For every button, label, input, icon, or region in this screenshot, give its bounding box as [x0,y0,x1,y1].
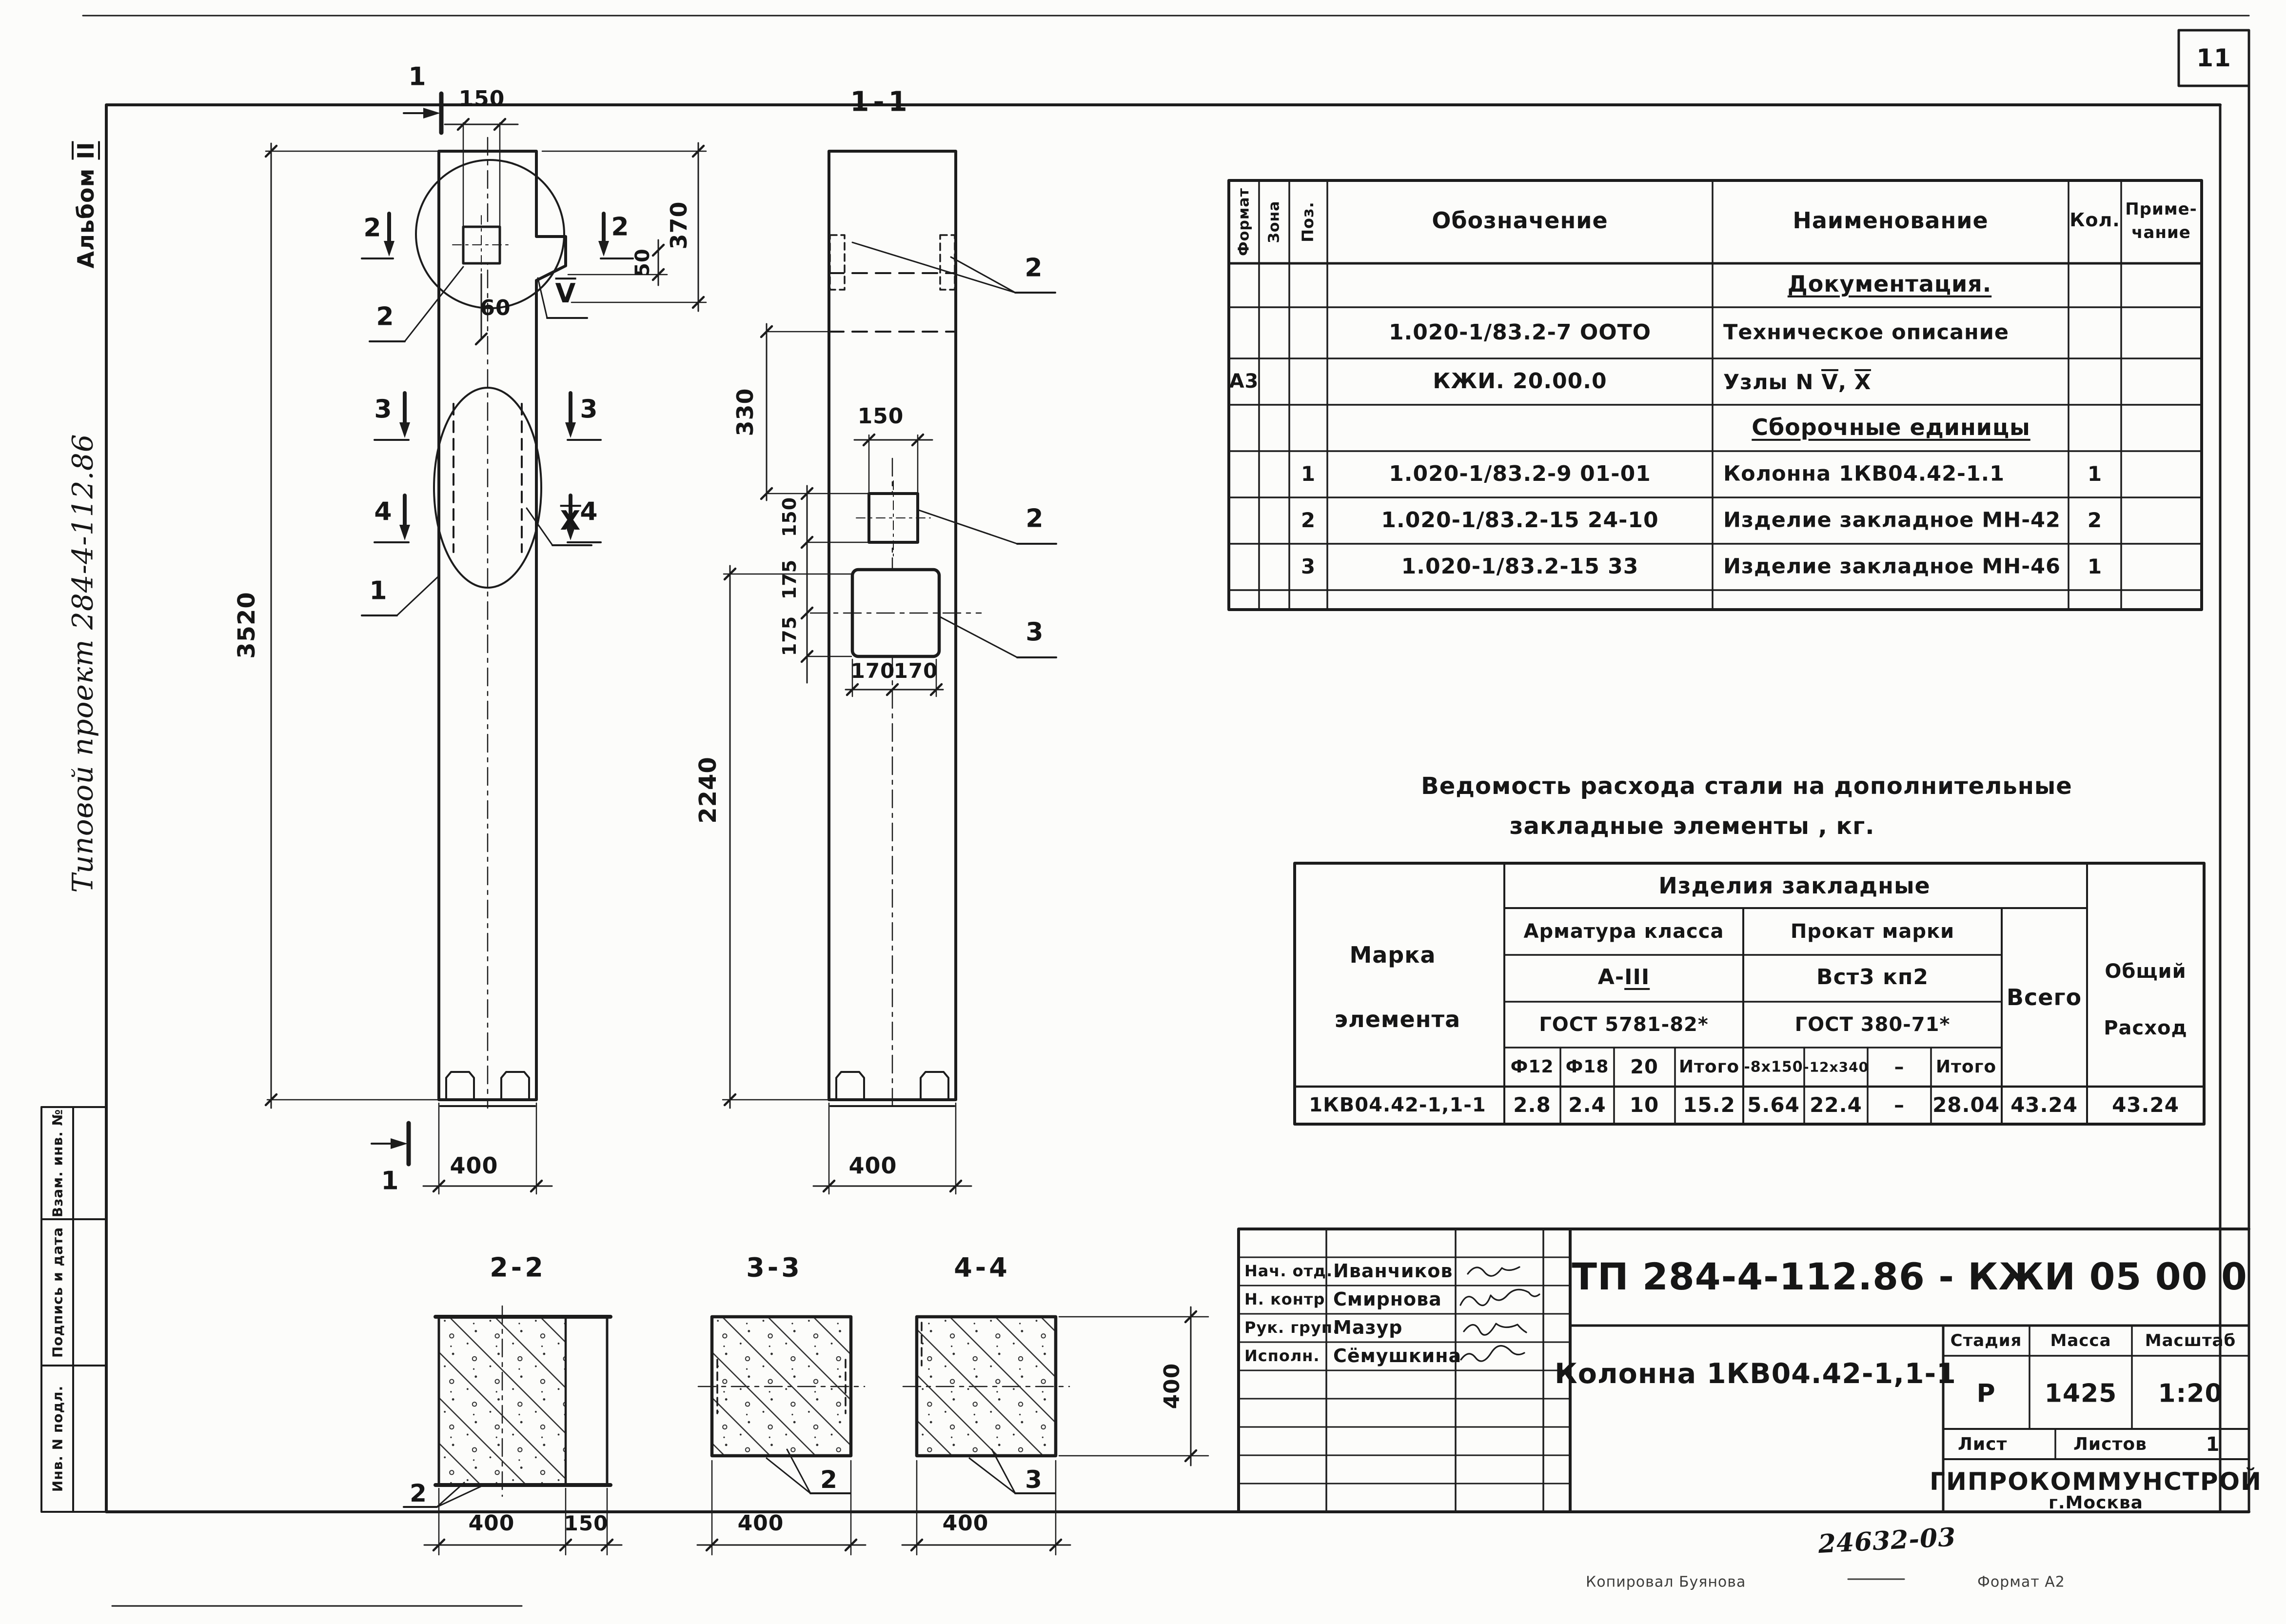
dim-3520: 3520 [235,592,259,659]
spec-row-kol: 1 [2088,556,2102,577]
a-class-num: III [1624,965,1650,990]
steel-sub-12x340: -12х340 [1803,1060,1869,1074]
section-mark-4-right: 4 [580,499,598,526]
leader-1-elevation: 1 [369,578,387,605]
steel-row-marka: 1КВ04.42-1,1-1 [1309,1095,1486,1115]
spec-row-oboz: 1.020-1/83.2-9 01-01 [1389,463,1651,485]
spec-header-poz: Поз. [1300,201,1317,242]
dim-150-plate: 150 [858,405,904,428]
uzly-comma: , [1838,370,1847,395]
spec-row-poz: 1 [1301,463,1316,485]
leader-2-elevation: 2 [376,304,394,331]
steel-title-line1: Ведомость расхода стали на дополнительны… [1421,774,2072,798]
title-4-4: 4-4 [954,1254,1010,1282]
steel-title-line2: закладные элементы , кг. [1510,814,1875,838]
node-x-text: X [560,505,581,534]
section-mark-4-left: 4 [374,499,392,526]
steel-sub-itogo-a: Итого [1679,1058,1739,1076]
steel-row-value: 22.4 [1810,1094,1862,1116]
steel-sub-20: 20 [1630,1057,1658,1077]
role-label: Рук. груп. [1244,1320,1339,1336]
leader-2-mid-section: 2 [1025,506,1044,533]
spec-header-kol: Кол. [2069,211,2120,230]
listov-value: 1 [2206,1434,2220,1455]
spec-r2-oboz: КЖИ. 20.00.0 [1433,370,1607,393]
steel-sub-f12: Ф12 [1511,1058,1554,1076]
dim-150-left: 150 [780,497,800,537]
spec-section-sborochnye: Сборочные единицы [1752,416,2030,439]
title-3-3: 3-3 [746,1254,803,1282]
steel-row-value: 15.2 [1683,1094,1735,1116]
spec-header-naimenovanie: Наименование [1793,209,1988,232]
spec-row-naim: Изделие закладное МН-46 [1723,555,2061,577]
steel-row-value: 28.04 [1932,1094,2000,1116]
section-mark-1-top: 1 [408,64,426,91]
spec-header-zona: Зона [1266,201,1282,243]
uzly-prefix: Узлы N [1723,370,1813,395]
role-name: Иванчиков [1333,1262,1453,1281]
section-mark-3-right: 3 [580,396,598,423]
spec-row-naim: Колонна 1КВ04.42-1.1 [1723,463,2005,485]
spec-row-poz: 3 [1301,556,1316,577]
sheet-number: 11 [2196,45,2231,71]
node-v-label: V [555,277,576,308]
steel-a-class: А-III [1598,966,1650,989]
leader-2-s22: 2 [410,1481,427,1506]
steel-sub-dash: – [1894,1057,1905,1077]
dim-170-b: 170 [894,660,938,682]
organization-name: ГИПРОКОММУНСТРОЙ [1930,1469,2262,1495]
dim-50: 50 [632,248,653,277]
footer-kopiroval: Копировал Буянова [1586,1574,1746,1590]
signature-ivanchikov [1468,1267,1519,1276]
margin-album: Альбом II [72,141,100,269]
steel-sub-8x150: -8х150 [1744,1059,1803,1075]
steel-row-value: 10 [1630,1094,1659,1116]
stamp-podpis-label: Подпись и дата [50,1227,64,1358]
steel-prokat: Прокат марки [1791,921,1954,942]
list-label: Лист [1958,1435,2007,1454]
spec-header-oboznachenie: Обозначение [1432,209,1608,232]
dim-60: 60 [480,297,511,319]
steel-row-value: 43.24 [2010,1094,2078,1116]
steel-row-value: – [1894,1094,1905,1116]
signature-mazur [1464,1324,1526,1335]
spec-row-oboz: 1.020-1/83.2-15 33 [1401,555,1639,578]
spec-r2-format: А3 [1229,371,1259,392]
role-label: Нач. отд. [1244,1263,1333,1280]
steel-obshiy-2: Расход [2104,1018,2187,1038]
signature-semushkina [1461,1346,1524,1361]
listov-label: Листов [2073,1435,2147,1454]
spec-r2-naim: Узлы N V, X [1723,369,1871,394]
spec-row-kol: 1 [2088,463,2102,485]
spec-section-documentation: Документация. [1788,272,1991,296]
section-mark-2-right: 2 [611,214,629,241]
steel-obshiy-1: Общий [2105,961,2186,982]
dim-150-s22: 150 [564,1513,609,1534]
role-name: Смирнова [1333,1290,1442,1309]
dim-150-top: 150 [459,88,505,110]
role-label: Исполн. [1244,1348,1320,1365]
steel-row-value: 2.8 [1513,1094,1551,1116]
spec-r1-oboz: 1.020-1/83.2-7 ООТО [1389,321,1651,344]
spec-r1-naim: Техническое описание [1723,321,2009,343]
dim-175-b: 175 [780,616,800,656]
album-prefix: Альбом [73,168,99,269]
view-title-1-1: 1-1 [850,88,911,117]
spec-header-prim-2: чание [2131,224,2191,242]
column-outline [439,151,566,1100]
steel-armatura: Арматура класса [1524,921,1724,942]
uzly-node-x: X [1854,369,1871,393]
steel-gost-p: ГОСТ 380-71* [1795,1014,1951,1035]
dim-400-s33: 400 [738,1512,784,1535]
steel-vst: Вст3 кп2 [1816,966,1929,989]
a-class-prefix: А- [1598,965,1624,990]
massa-label: Масса [2050,1332,2111,1350]
drawing-sheet: 11 Альбом II Типовой проект 284-4-112.86… [0,0,2286,1624]
section-mark-1-bottom: 1 [381,1168,399,1195]
steel-sub-itogo-p: Итого [1936,1058,1996,1076]
steel-vsego: Всего [2007,986,2082,1009]
hand-written-number: 24632-03 [1817,1524,1956,1558]
spec-row-poz: 2 [1301,510,1316,531]
spec-table-grid [1229,180,2202,610]
footer-format: Формат А2 [1977,1574,2065,1590]
dim-400-s22: 400 [469,1512,515,1535]
stamp-inv-label: Инв. N подл. [50,1386,64,1492]
leader-2-s33: 2 [820,1467,838,1493]
spec-header-format: Формат [1236,188,1252,256]
massa-value: 1425 [2045,1381,2117,1407]
margin-project-number: Типовой проект 284-4-112.86 [68,434,98,892]
stadia-label: Стадия [1951,1332,2022,1350]
dim-400-s44: 400 [943,1512,989,1535]
spec-row-naim: Изделие закладное МН-42 [1723,509,2061,531]
steel-sub-f18: Ф18 [1566,1058,1609,1076]
dim-400-elevation: 400 [450,1154,498,1177]
spec-row-kol: 2 [2088,510,2102,531]
steel-row-value: 5.64 [1747,1094,1800,1116]
dim-400-section: 400 [848,1154,897,1177]
dim-170-a: 170 [851,660,895,682]
title-2-2: 2-2 [490,1254,546,1282]
spec-header-prim-1: Приме- [2125,201,2197,218]
role-name: Мазур [1333,1318,1403,1338]
signature-smirnova [1460,1289,1539,1305]
document-number: ТП 284-4-112.86 - КЖИ 05 00 0 [1572,1257,2247,1296]
steel-gost-a: ГОСТ 5781-82* [1539,1014,1709,1035]
dim-370: 370 [667,201,690,249]
steel-row-value: 43.24 [2112,1094,2179,1116]
masshtab-value: 1:20 [2158,1381,2223,1407]
item-name: Колонна 1КВ04.42-1,1-1 [1555,1360,1956,1389]
uzly-node-v: V [1821,369,1838,393]
node-v-text: V [555,277,576,307]
dim-330: 330 [733,388,757,436]
steel-marka-1: Марка [1349,943,1436,967]
role-name: Сёмушкина [1333,1347,1461,1366]
stadia-value: Р [1976,1381,1995,1407]
dim-400v-s44: 400 [1161,1363,1183,1409]
section-mark-3-left: 3 [374,396,392,423]
steel-row-value: 2.4 [1568,1094,1606,1116]
organization-city: г.Москва [2049,1494,2143,1512]
dim-2240: 2240 [696,756,720,824]
dim-175-a: 175 [780,559,800,599]
section-mark-2-left: 2 [363,215,381,242]
stamp-vzam-label: Взам. инв. № [50,1109,64,1218]
spec-row-oboz: 1.020-1/83.2-15 24-10 [1381,509,1658,532]
steel-izdeliya: Изделия закладные [1658,874,1931,897]
leader-3-s44: 3 [1025,1467,1043,1493]
leader-2-top-section: 2 [1025,255,1043,282]
masshtab-label: Масштаб [2145,1332,2236,1350]
node-x-label: X [560,505,581,535]
role-label: Н. контр [1244,1291,1325,1308]
steel-marka-2: элемента [1335,1008,1460,1031]
leader-3-section: 3 [1025,619,1044,646]
album-roman-numeral: II [72,141,100,160]
